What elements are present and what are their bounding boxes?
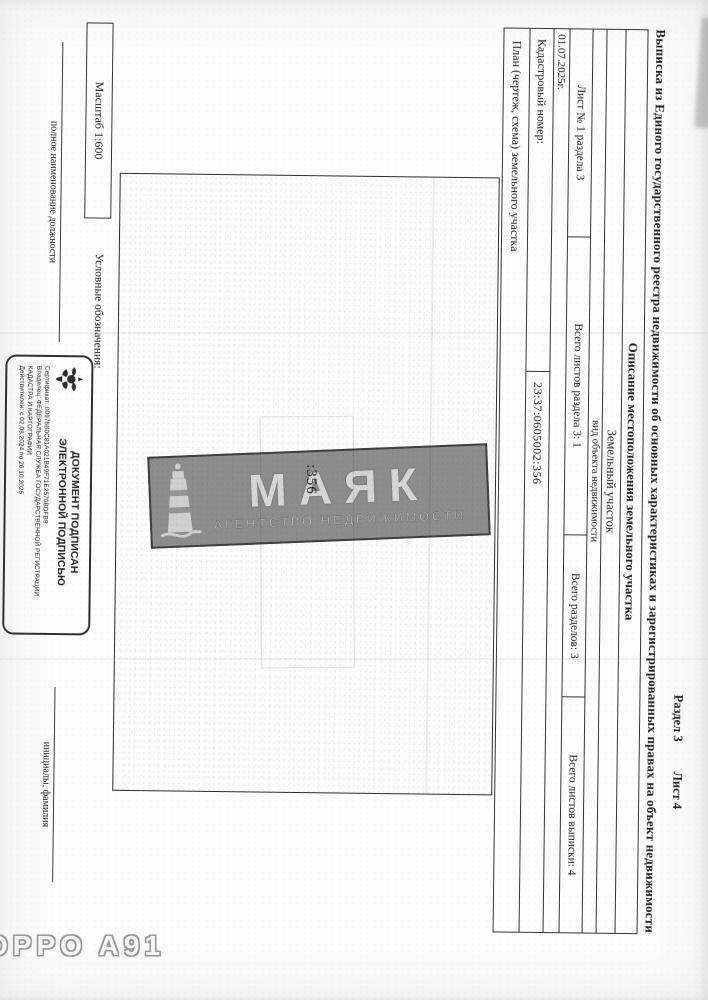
sheet-info-cell: Всего листов раздела 3: 1	[564, 237, 590, 535]
stamp-header: ДОКУМЕНТ ПОДПИСАН ЭЛЕКТРОННОЙ ПОДПИСЬЮ	[51, 366, 84, 624]
document-photo: Раздел 3 Лист 4 Выписка из Единого госуд…	[0, 0, 708, 1000]
agency-watermark: МАЯК АГЕНТСТВО НЕДВИЖИМОСТИ	[147, 443, 490, 549]
sheet-number: Лист 4	[669, 772, 684, 810]
stamp-title: ДОКУМЕНТ ПОДПИСАН ЭЛЕКТРОННОЙ ПОДПИСЬЮ	[53, 400, 82, 624]
agency-name: МАЯК	[200, 458, 478, 515]
digital-signature-stamp: ДОКУМЕНТ ПОДПИСАН ЭЛЕКТРОННОЙ ПОДПИСЬЮ С…	[2, 354, 93, 635]
sheet-info-cell: Лист № 1 раздела 3	[568, 29, 593, 237]
cadastral-label: Кадастровый номер:	[526, 29, 553, 372]
signature-blank-line	[52, 687, 55, 882]
sheet-info-cell: Всего листов выписки: 4	[560, 697, 585, 932]
legend-label: Условные обозначения:	[91, 253, 104, 368]
camera-watermark: OPPO A91	[0, 930, 165, 962]
position-label: полное наименование должности	[46, 42, 61, 342]
sheet-info-cell: Всего разделов: 3	[562, 535, 586, 698]
stamp-title-line1: ДОКУМЕНТ ПОДПИСАН	[66, 400, 82, 624]
page-corner-labels: Раздел 3 Лист 4	[668, 695, 686, 915]
paper-fold-line	[0, 332, 708, 335]
cadastral-number: 23:37:0605002:356	[524, 372, 546, 932]
stamp-owner: Владелец: ФЕДЕРАЛЬНАЯ СЛУЖБА ГОСУДАРСТВЕ…	[22, 366, 42, 624]
rosreestr-emblem-icon	[54, 366, 84, 392]
section-number: Раздел 3	[670, 695, 686, 742]
agency-watermark-text: МАЯК АГЕНТСТВО НЕДВИЖИМОСТИ	[200, 458, 478, 532]
paper-fold-line	[0, 658, 708, 661]
scale-cell: Масштаб 1:600	[84, 22, 113, 218]
lighthouse-icon	[158, 461, 203, 543]
header-table: Описание местоположения земельного участ…	[493, 27, 649, 934]
initials-label: инициалы, фамилия	[39, 687, 52, 882]
stamp-title-line2: ЭЛЕКТРОННОЙ ПОДПИСЬЮ	[53, 400, 69, 624]
